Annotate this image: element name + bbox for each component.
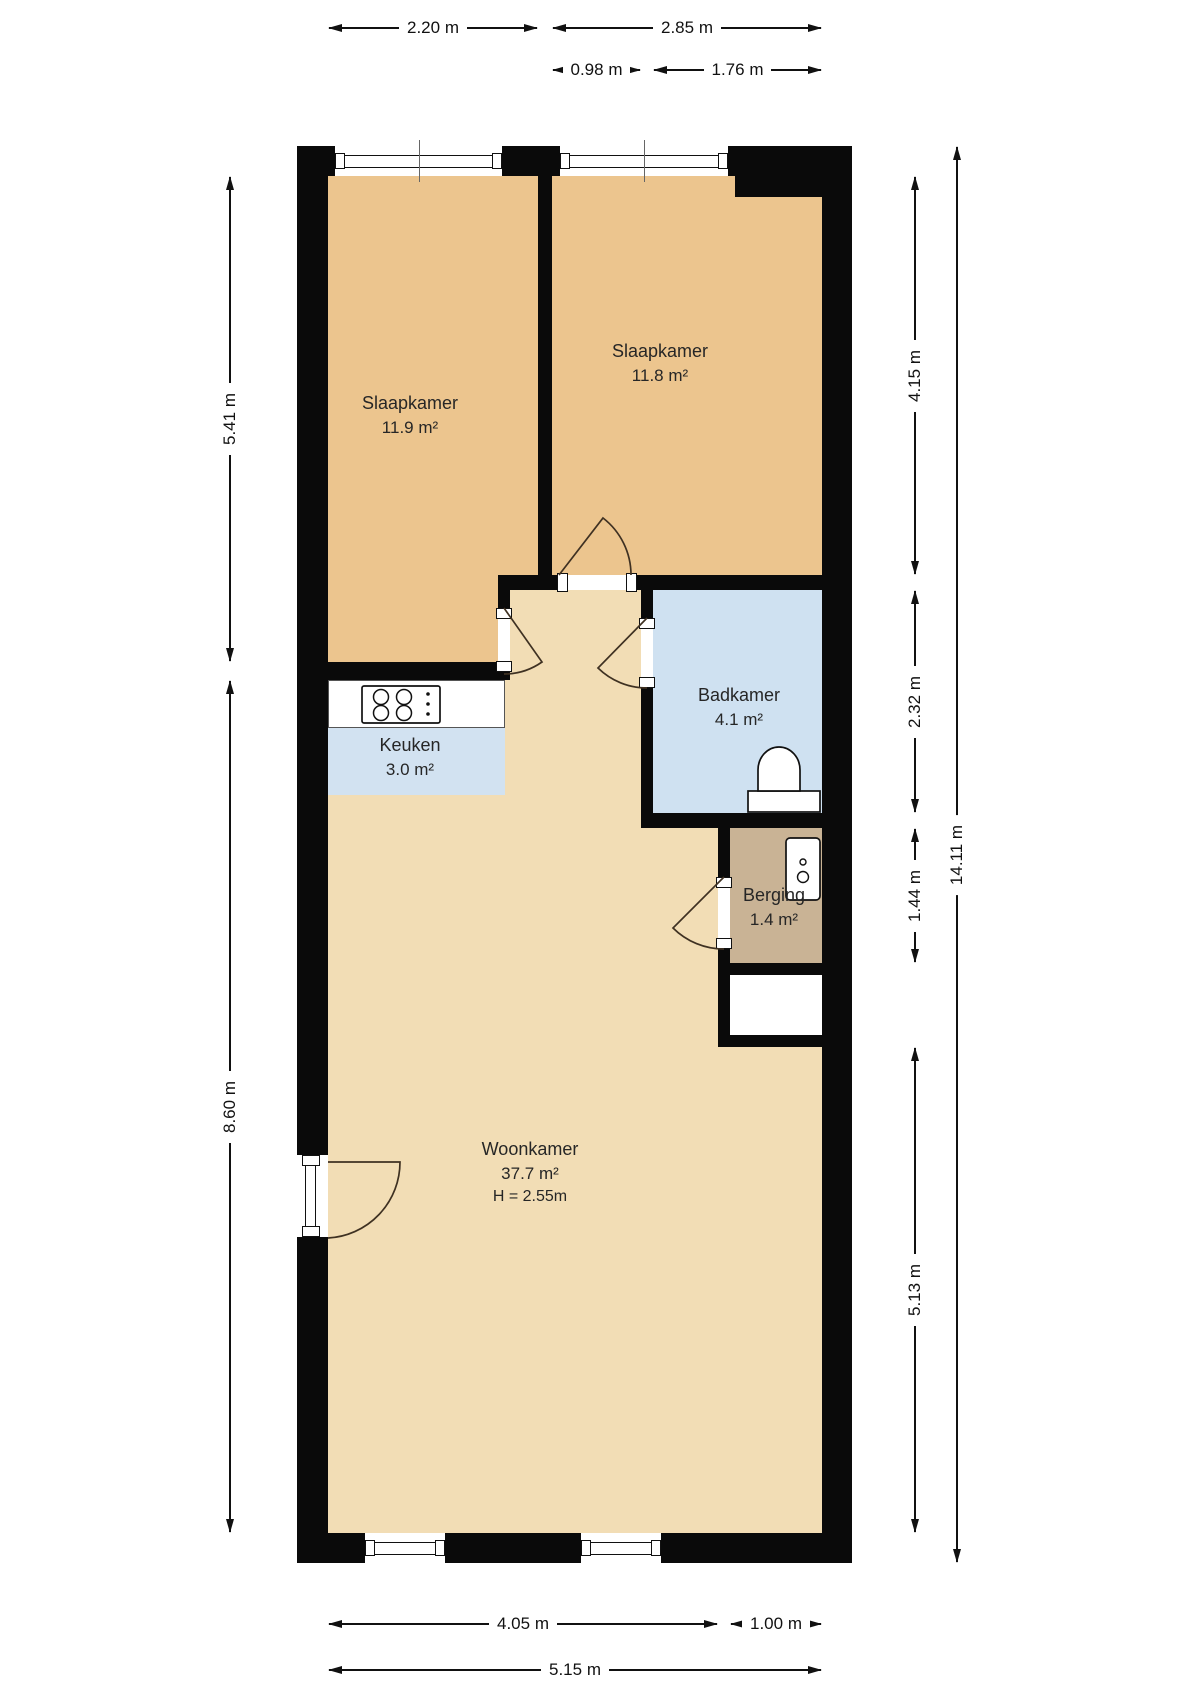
dim-right-144: 1.44 m bbox=[906, 828, 924, 963]
dim-right-513: 5.13 m bbox=[906, 1047, 924, 1533]
dim-label: 2.32 m bbox=[904, 666, 926, 738]
room-area: 11.8 m² bbox=[612, 364, 708, 388]
room-area: 37.7 m² bbox=[482, 1162, 579, 1186]
dim-label: 8.60 m bbox=[219, 1071, 241, 1143]
dim-right-1411: 14.11 m bbox=[948, 146, 966, 1563]
door-swing-berging bbox=[673, 877, 724, 949]
dim-label: 5.15 m bbox=[541, 1659, 609, 1681]
dim-bottom-405: 4.05 m bbox=[328, 1615, 718, 1633]
dim-label: 0.98 m bbox=[563, 59, 631, 81]
dim-label: 2.20 m bbox=[399, 17, 467, 39]
dim-bottom-515: 5.15 m bbox=[328, 1661, 822, 1679]
floor-plan-canvas: Slaapkamer 11.9 m² Slaapkamer 11.8 m² Ba… bbox=[0, 0, 1200, 1697]
door-swing-badkamer bbox=[598, 618, 647, 688]
dim-right-232: 2.32 m bbox=[906, 590, 924, 813]
dim-bottom-100: 1.00 m bbox=[730, 1615, 822, 1633]
door-swing-slaapkamer-left bbox=[504, 608, 542, 674]
room-name: Slaapkamer bbox=[362, 390, 458, 416]
label-berging: Berging 1.4 m² bbox=[743, 882, 805, 932]
dim-right-415: 4.15 m bbox=[906, 176, 924, 575]
dim-left-860: 8.60 m bbox=[221, 680, 239, 1533]
label-slaapkamer-right: Slaapkamer 11.8 m² bbox=[612, 338, 708, 388]
stove-icon bbox=[362, 686, 440, 723]
room-name: Berging bbox=[743, 882, 805, 908]
dim-label: 14.11 m bbox=[946, 814, 968, 894]
room-area: 3.0 m² bbox=[379, 758, 440, 782]
dim-label: 5.13 m bbox=[904, 1254, 926, 1326]
dim-label: 2.85 m bbox=[653, 17, 721, 39]
room-name: Badkamer bbox=[698, 682, 780, 708]
dim-label: 1.00 m bbox=[742, 1613, 810, 1635]
dim-top-220: 2.20 m bbox=[328, 19, 538, 37]
dim-label: 4.15 m bbox=[904, 340, 926, 412]
fixtures-overlay bbox=[0, 0, 1200, 1697]
label-keuken: Keuken 3.0 m² bbox=[379, 732, 440, 782]
dim-top-098: 0.98 m bbox=[552, 61, 641, 79]
label-woonkamer: Woonkamer 37.7 m² H = 2.55m bbox=[482, 1136, 579, 1208]
door-swing-entry bbox=[328, 1162, 400, 1238]
room-area: 11.9 m² bbox=[362, 416, 458, 440]
dim-label: 4.05 m bbox=[489, 1613, 557, 1635]
room-area: 1.4 m² bbox=[743, 908, 805, 932]
room-name: Keuken bbox=[379, 732, 440, 758]
dim-label: 1.76 m bbox=[704, 59, 772, 81]
dim-label: 1.44 m bbox=[904, 860, 926, 932]
dim-top-176: 1.76 m bbox=[653, 61, 822, 79]
room-name: Woonkamer bbox=[482, 1136, 579, 1162]
label-badkamer: Badkamer 4.1 m² bbox=[698, 682, 780, 732]
toilet-icon bbox=[748, 747, 820, 812]
label-slaapkamer-left: Slaapkamer 11.9 m² bbox=[362, 390, 458, 440]
room-area: 4.1 m² bbox=[698, 708, 780, 732]
room-ceiling-height: H = 2.55m bbox=[482, 1186, 579, 1208]
room-name: Slaapkamer bbox=[612, 338, 708, 364]
door-swing-slaapkamer-right bbox=[559, 518, 631, 575]
dim-left-541: 5.41 m bbox=[221, 176, 239, 662]
dim-label: 5.41 m bbox=[219, 383, 241, 455]
dim-top-285: 2.85 m bbox=[552, 19, 822, 37]
